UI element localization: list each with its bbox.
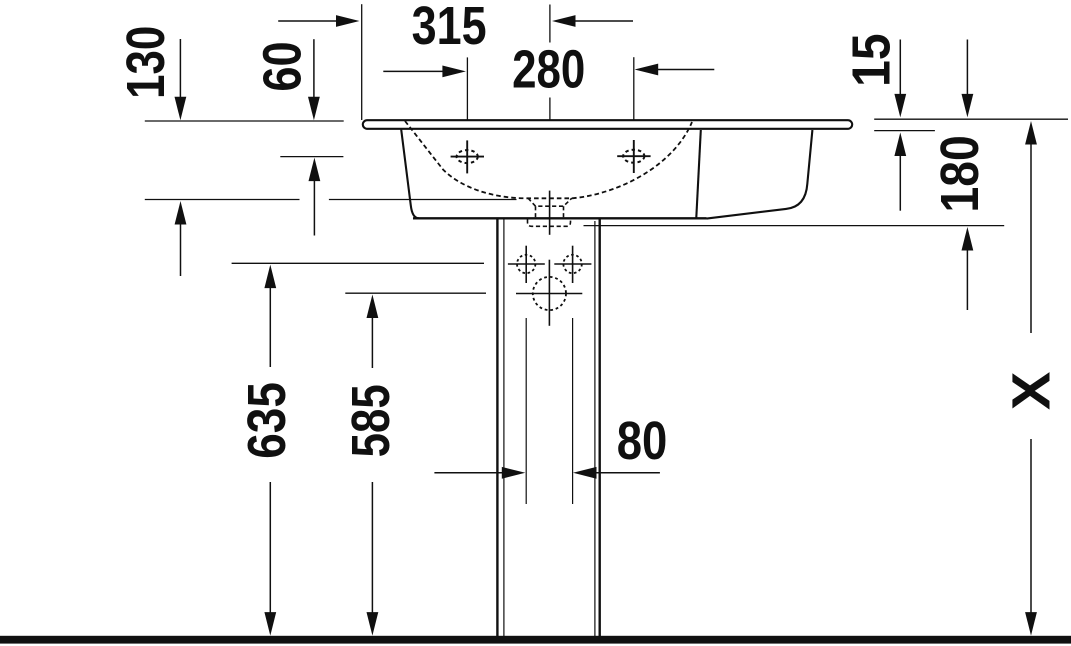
svg-text:X: X bbox=[1001, 372, 1061, 411]
svg-text:60: 60 bbox=[253, 41, 312, 91]
svg-text:280: 280 bbox=[512, 41, 585, 100]
svg-text:585: 585 bbox=[342, 384, 401, 457]
svg-text:180: 180 bbox=[930, 135, 990, 212]
svg-text:315: 315 bbox=[412, 0, 487, 56]
svg-text:15: 15 bbox=[841, 33, 901, 87]
svg-text:130: 130 bbox=[117, 26, 176, 99]
svg-text:80: 80 bbox=[617, 411, 668, 471]
svg-text:635: 635 bbox=[237, 382, 297, 459]
